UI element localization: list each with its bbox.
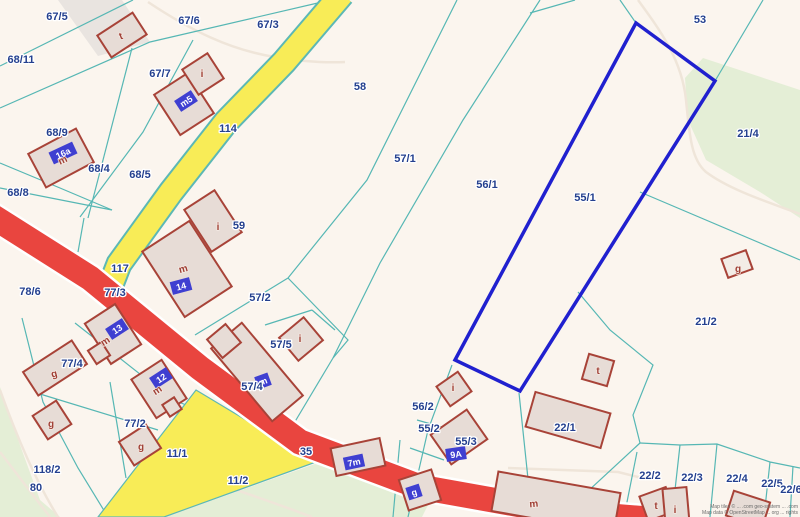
parcel-label-22-1[interactable]: 22/1 xyxy=(554,422,575,434)
parcel-label-22-2[interactable]: 22/2 xyxy=(639,470,660,482)
cadastral-map[interactable]: m516a141312m7mg9Atimimmmgggiitgmti67/567… xyxy=(0,0,800,517)
building-letter-g: g xyxy=(735,264,741,275)
address-badge-9A: 9A xyxy=(445,446,467,462)
parcel-label-68-9[interactable]: 68/9 xyxy=(46,127,67,139)
parcel-label-67-6[interactable]: 67/6 xyxy=(178,15,199,27)
building-letter-i: i xyxy=(201,69,204,80)
parcel-label-114[interactable]: 114 xyxy=(219,123,238,135)
cadastral-map-viewport[interactable]: m516a141312m7mg9Atimimmmgggiitgmti67/567… xyxy=(0,0,800,517)
parcel-label-67-3[interactable]: 67/3 xyxy=(257,19,278,31)
building-letter-i: i xyxy=(452,383,455,394)
parcel-label-11-1[interactable]: 11/1 xyxy=(167,448,188,460)
parcel-label-68-8[interactable]: 68/8 xyxy=(7,187,28,199)
parcel-label-77-3[interactable]: 77/3 xyxy=(104,287,125,299)
parcel-label-55-1[interactable]: 55/1 xyxy=(574,192,595,204)
parcel-label-56-2[interactable]: 56/2 xyxy=(412,401,433,413)
parcel-label-59[interactable]: 59 xyxy=(233,220,245,232)
parcel-label-21-2[interactable]: 21/2 xyxy=(695,316,716,328)
parcel-label-57-1[interactable]: 57/1 xyxy=(394,153,415,165)
parcel-label-35[interactable]: 35 xyxy=(300,446,312,458)
parcel-label-68-5[interactable]: 68/5 xyxy=(129,169,150,181)
building-letter-i: i xyxy=(674,505,677,516)
parcel-label-78-6[interactable]: 78/6 xyxy=(19,286,40,298)
building-letter-i: i xyxy=(217,222,220,233)
parcel-label-56-1[interactable]: 56/1 xyxy=(476,179,497,191)
parcel-label-55-3[interactable]: 55/3 xyxy=(455,436,476,448)
parcel-label-58[interactable]: 58 xyxy=(354,81,366,93)
building-letter-i: i xyxy=(299,334,302,345)
parcel-label-80[interactable]: 80 xyxy=(30,482,42,494)
parcel-label-68-11[interactable]: 68/11 xyxy=(8,54,35,66)
address-badge-label: 9A xyxy=(450,449,463,461)
parcel-label-22-4[interactable]: 22/4 xyxy=(726,473,748,485)
parcel-label-22-6[interactable]: 22/6 xyxy=(780,484,800,496)
parcel-label-57-4[interactable]: 57/4 xyxy=(241,381,263,393)
parcel-label-118-2[interactable]: 118/2 xyxy=(34,464,61,476)
building-letter-m: m xyxy=(529,499,539,511)
building-letter-g: g xyxy=(138,442,144,453)
parcel-label-117[interactable]: 117 xyxy=(111,263,129,275)
parcel-label-67-5[interactable]: 67/5 xyxy=(46,11,67,23)
parcel-label-21-4[interactable]: 21/4 xyxy=(737,128,759,140)
building-letter-g: g xyxy=(48,419,54,430)
parcel-label-22-3[interactable]: 22/3 xyxy=(681,472,702,484)
parcel-label-55-2[interactable]: 55/2 xyxy=(418,423,439,435)
map-attribution: Map tiles © ... .com geo-system ... .com… xyxy=(702,504,798,516)
parcel-label-57-2[interactable]: 57/2 xyxy=(249,292,270,304)
parcel-label-77-2[interactable]: 77/2 xyxy=(124,418,145,430)
parcel-label-11-2[interactable]: 11/2 xyxy=(228,475,249,487)
parcel-label-77-4[interactable]: 77/4 xyxy=(61,358,83,370)
attribution-line-2: Map data © OpenStreetMap ... org ... rig… xyxy=(702,510,798,516)
parcel-label-53[interactable]: 53 xyxy=(694,14,706,26)
parcel-label-67-7[interactable]: 67/7 xyxy=(149,68,170,80)
parcel-label-57-5[interactable]: 57/5 xyxy=(270,339,291,351)
parcel-label-68-4[interactable]: 68/4 xyxy=(88,163,110,175)
